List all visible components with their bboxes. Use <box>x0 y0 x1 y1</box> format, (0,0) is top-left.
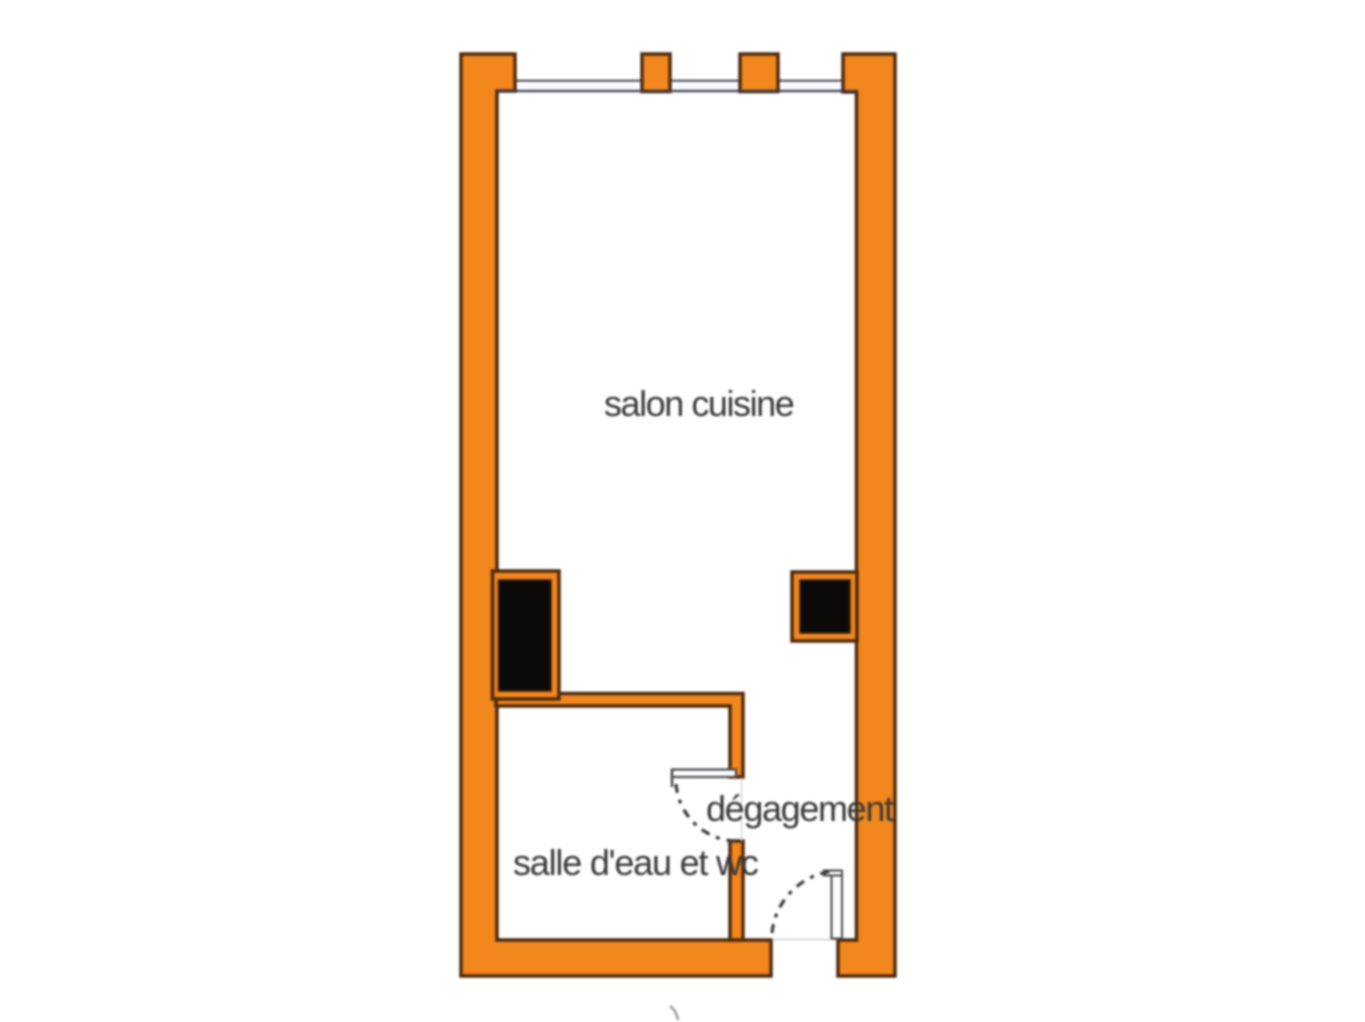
svg-text:salle d'eau et wc: salle d'eau et wc <box>513 842 759 883</box>
svg-text:dégagement: dégagement <box>706 788 894 829</box>
svg-text:salon cuisine: salon cuisine <box>604 383 794 424</box>
